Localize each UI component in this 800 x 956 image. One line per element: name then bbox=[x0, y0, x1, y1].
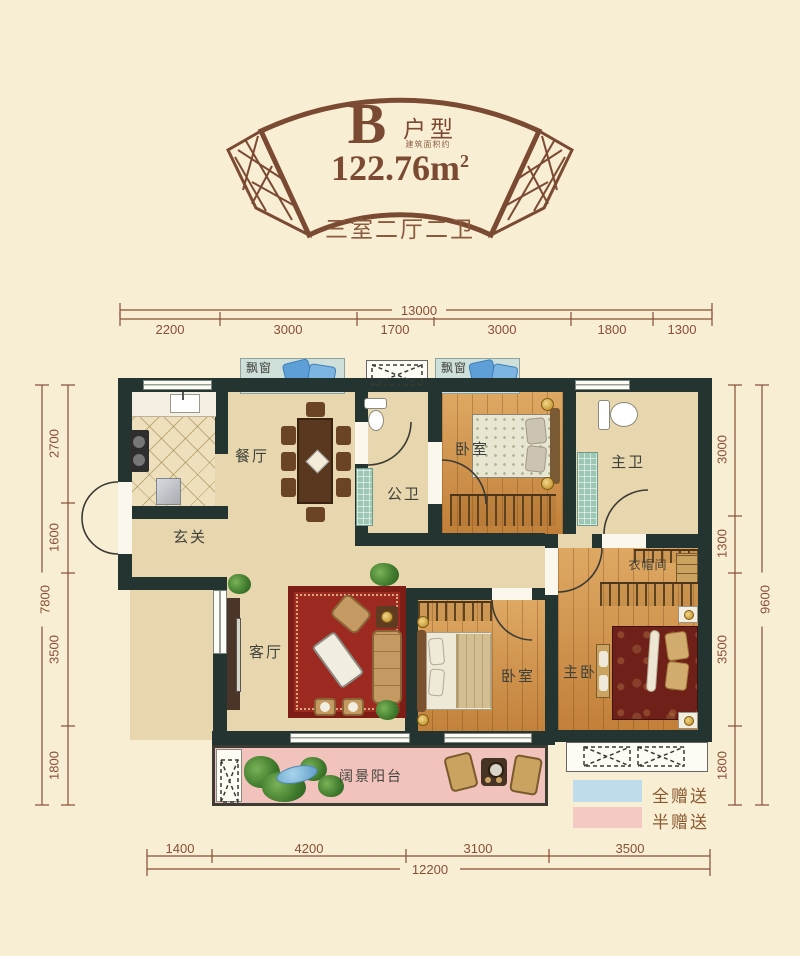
dining-chair bbox=[281, 426, 296, 445]
ottoman bbox=[342, 698, 364, 716]
ottoman bbox=[314, 698, 336, 716]
dim-right-seg: 3500 bbox=[716, 630, 729, 670]
bed-headboard bbox=[417, 630, 426, 712]
nightstand bbox=[678, 606, 698, 623]
room-label-entry: 玄关 bbox=[168, 529, 212, 546]
table-pot bbox=[488, 762, 504, 778]
kitchen-sink bbox=[170, 394, 200, 413]
floorplan-page: B 户型 建筑面积约 122.76m2 三室二厅二卫 13000 2200 30… bbox=[0, 0, 800, 956]
lamp bbox=[541, 398, 554, 411]
ottoman-cushion bbox=[320, 702, 330, 712]
dining-chair bbox=[281, 478, 296, 497]
area-number: 122.76m bbox=[331, 148, 460, 188]
door-opening bbox=[492, 588, 532, 600]
balcony-table bbox=[481, 758, 507, 786]
layout-subtitle: 三室二厅二卫 bbox=[270, 210, 530, 244]
legend-label-half-gift: 半赠送 bbox=[652, 808, 709, 833]
dim-right-total: 9600 bbox=[759, 573, 772, 627]
wall-segment bbox=[545, 730, 712, 742]
fridge bbox=[156, 478, 181, 505]
wall-segment bbox=[355, 533, 445, 546]
table-cup bbox=[496, 777, 502, 783]
lamp bbox=[541, 477, 554, 490]
room-label-bay-window-2: 飘窗 bbox=[441, 362, 467, 376]
room-label-master-bedroom: 主卧 bbox=[558, 664, 602, 681]
door-opening bbox=[118, 482, 132, 554]
master-bath-window bbox=[575, 380, 630, 390]
dim-right-seg: 1800 bbox=[716, 746, 729, 786]
dim-left-seg: 1800 bbox=[48, 746, 61, 786]
dim-top-total: 13000 bbox=[392, 304, 446, 317]
dim-bottom-seg: 3100 bbox=[454, 842, 502, 855]
lamp bbox=[381, 611, 393, 623]
wall-segment bbox=[215, 392, 228, 454]
bed-pillow bbox=[525, 417, 548, 445]
stove bbox=[130, 430, 149, 472]
room-label-bedroom-bottom: 卧室 bbox=[496, 668, 540, 685]
bed-quilt bbox=[456, 634, 491, 708]
dining-table bbox=[297, 418, 333, 504]
shower bbox=[356, 468, 373, 526]
lamp bbox=[684, 716, 694, 726]
table-centerpiece bbox=[305, 449, 329, 473]
faucet bbox=[182, 392, 184, 400]
wall-segment bbox=[545, 595, 558, 742]
bed-pillow bbox=[664, 631, 690, 662]
fan-lattice-left bbox=[235, 136, 295, 220]
room-label-bedroom-top: 卧室 bbox=[450, 441, 494, 458]
tv-unit bbox=[227, 598, 240, 710]
wall-segment bbox=[118, 506, 228, 519]
cloakroom-cabinet bbox=[676, 553, 698, 583]
dim-left-seg: 2700 bbox=[48, 424, 61, 464]
ac-platform-bottom bbox=[566, 742, 708, 772]
room-label-balcony: 阔景阳台 bbox=[327, 768, 415, 784]
cloakroom-rack bbox=[600, 582, 698, 606]
burner bbox=[133, 454, 145, 466]
wall-segment bbox=[442, 533, 545, 546]
balcony-door-window bbox=[444, 733, 532, 743]
table-cup bbox=[485, 777, 491, 783]
dim-left-seg: 1600 bbox=[48, 518, 61, 558]
corner-table bbox=[376, 606, 398, 628]
wardrobe bbox=[450, 494, 556, 526]
dim-right-seg: 3000 bbox=[716, 430, 729, 470]
room-label-cloakroom: 衣帽间 bbox=[620, 559, 676, 573]
toilet-bowl bbox=[368, 410, 384, 431]
wardrobe bbox=[418, 601, 492, 621]
kitchen-window bbox=[143, 380, 212, 390]
dim-left-seg: 3500 bbox=[48, 630, 61, 670]
room-label-dining: 餐厅 bbox=[228, 448, 276, 465]
living-window bbox=[213, 590, 227, 654]
dim-bottom-seg: 4200 bbox=[285, 842, 333, 855]
lamp bbox=[684, 610, 694, 620]
dim-top-seg: 3000 bbox=[478, 323, 526, 336]
room-label-bay-window-1: 飘窗 bbox=[246, 362, 272, 376]
dining-chair bbox=[281, 452, 296, 471]
legend-label-full-gift: 全赠送 bbox=[652, 782, 709, 807]
toilet-bowl bbox=[610, 402, 638, 427]
wall-segment bbox=[532, 588, 545, 600]
wall-segment bbox=[428, 392, 442, 442]
wall-segment bbox=[545, 534, 558, 548]
bed-pillow bbox=[428, 637, 445, 665]
lamp bbox=[417, 714, 429, 726]
wall-segment bbox=[563, 392, 576, 534]
legend-swatch-full-gift bbox=[573, 780, 642, 802]
door-opening bbox=[602, 534, 646, 548]
dim-bottom-total: 12200 bbox=[400, 863, 460, 876]
shower bbox=[577, 452, 598, 526]
dining-chair bbox=[306, 402, 325, 417]
room-label-living: 客厅 bbox=[244, 644, 288, 661]
legend-swatch-half-gift bbox=[573, 807, 642, 828]
dim-bottom-seg: 1400 bbox=[156, 842, 204, 855]
room-label-public-bath: 公卫 bbox=[384, 486, 424, 503]
toilet bbox=[364, 398, 387, 409]
wall-segment bbox=[698, 378, 712, 738]
dining-chair bbox=[336, 478, 351, 497]
dining-chair bbox=[306, 507, 325, 522]
door-opening bbox=[545, 548, 558, 595]
sofa bbox=[372, 630, 402, 704]
ottoman-cushion bbox=[348, 702, 358, 712]
dining-chair bbox=[336, 452, 351, 471]
door-opening bbox=[428, 442, 442, 504]
fan-lattice-right bbox=[505, 136, 565, 220]
dining-chair bbox=[336, 426, 351, 445]
area-value: 122.76m2 bbox=[300, 147, 500, 189]
bed-pillow bbox=[525, 445, 548, 473]
plant bbox=[376, 700, 399, 720]
wall-segment bbox=[118, 577, 226, 590]
tv-screen bbox=[236, 618, 241, 692]
plant bbox=[370, 563, 399, 586]
area-superscript: 2 bbox=[460, 151, 469, 171]
wall-segment bbox=[405, 588, 492, 600]
burner bbox=[133, 436, 145, 448]
toilet bbox=[598, 400, 610, 430]
dim-top-seg: 3000 bbox=[264, 323, 312, 336]
nightstand bbox=[678, 712, 698, 729]
door-opening bbox=[355, 422, 368, 464]
dim-bottom-seg: 3500 bbox=[606, 842, 654, 855]
dim-left-total: 7800 bbox=[39, 573, 52, 627]
room-label-master-bath: 主卫 bbox=[606, 454, 650, 471]
plant bbox=[228, 574, 251, 594]
dim-top-seg: 2200 bbox=[146, 323, 194, 336]
bed-pillow bbox=[428, 668, 445, 696]
bed-headboard bbox=[550, 408, 560, 484]
dim-right-seg: 1300 bbox=[716, 524, 729, 564]
wall-segment bbox=[592, 534, 602, 548]
dim-top-seg: 1700 bbox=[371, 323, 419, 336]
bed-pillow bbox=[664, 661, 689, 691]
balcony-column bbox=[216, 749, 242, 802]
dim-top-seg: 1800 bbox=[588, 323, 636, 336]
lamp bbox=[417, 616, 429, 628]
dim-top-seg: 1300 bbox=[658, 323, 706, 336]
balcony-door-window bbox=[290, 733, 410, 743]
